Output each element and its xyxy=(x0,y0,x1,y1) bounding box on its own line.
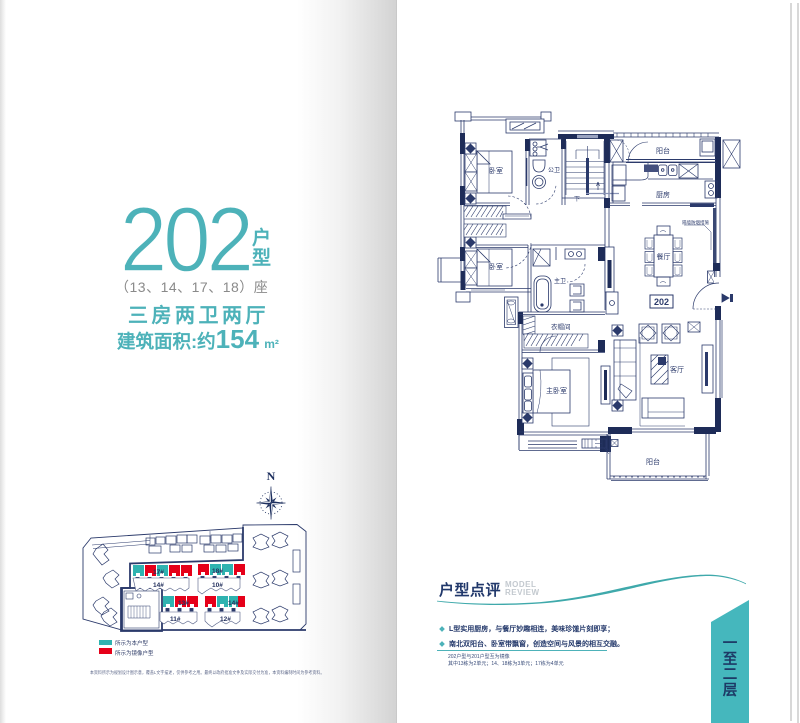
svg-text:13#: 13# xyxy=(178,600,189,607)
svg-text:14#: 14# xyxy=(228,600,239,607)
svg-text:10#: 10# xyxy=(212,582,223,589)
svg-text:客厅: 客厅 xyxy=(670,365,684,374)
svg-text:14#: 14# xyxy=(153,582,164,589)
svg-text:阳台: 阳台 xyxy=(656,146,670,155)
svg-text:主卧室: 主卧室 xyxy=(546,386,567,395)
svg-text:17#: 17# xyxy=(153,569,164,576)
svg-text:餐厅: 餐厅 xyxy=(657,252,671,261)
svg-text:202: 202 xyxy=(654,297,669,307)
svg-text:下: 下 xyxy=(574,196,580,203)
svg-text:阳台: 阳台 xyxy=(646,457,660,466)
svg-text:N: N xyxy=(267,469,276,483)
svg-text:主卫: 主卫 xyxy=(554,277,566,285)
svg-text:隔墙防烟措施: 隔墙防烟措施 xyxy=(682,219,709,226)
svg-text:公卫: 公卫 xyxy=(548,167,560,174)
svg-text:衣帽间: 衣帽间 xyxy=(551,322,571,331)
svg-text:11#: 11# xyxy=(170,616,181,623)
svg-text:卧室: 卧室 xyxy=(489,262,503,271)
svg-text:12#: 12# xyxy=(220,616,231,623)
svg-text:18#: 18# xyxy=(212,568,223,575)
svg-text:卧室: 卧室 xyxy=(489,166,503,175)
svg-text:厨房: 厨房 xyxy=(656,190,670,199)
